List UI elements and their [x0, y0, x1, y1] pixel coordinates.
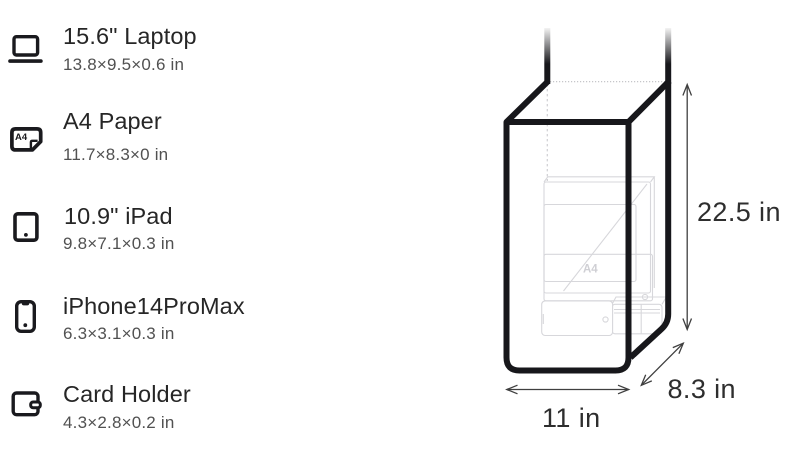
svg-text:A4: A4: [583, 264, 598, 276]
svg-text:A4: A4: [15, 132, 28, 143]
